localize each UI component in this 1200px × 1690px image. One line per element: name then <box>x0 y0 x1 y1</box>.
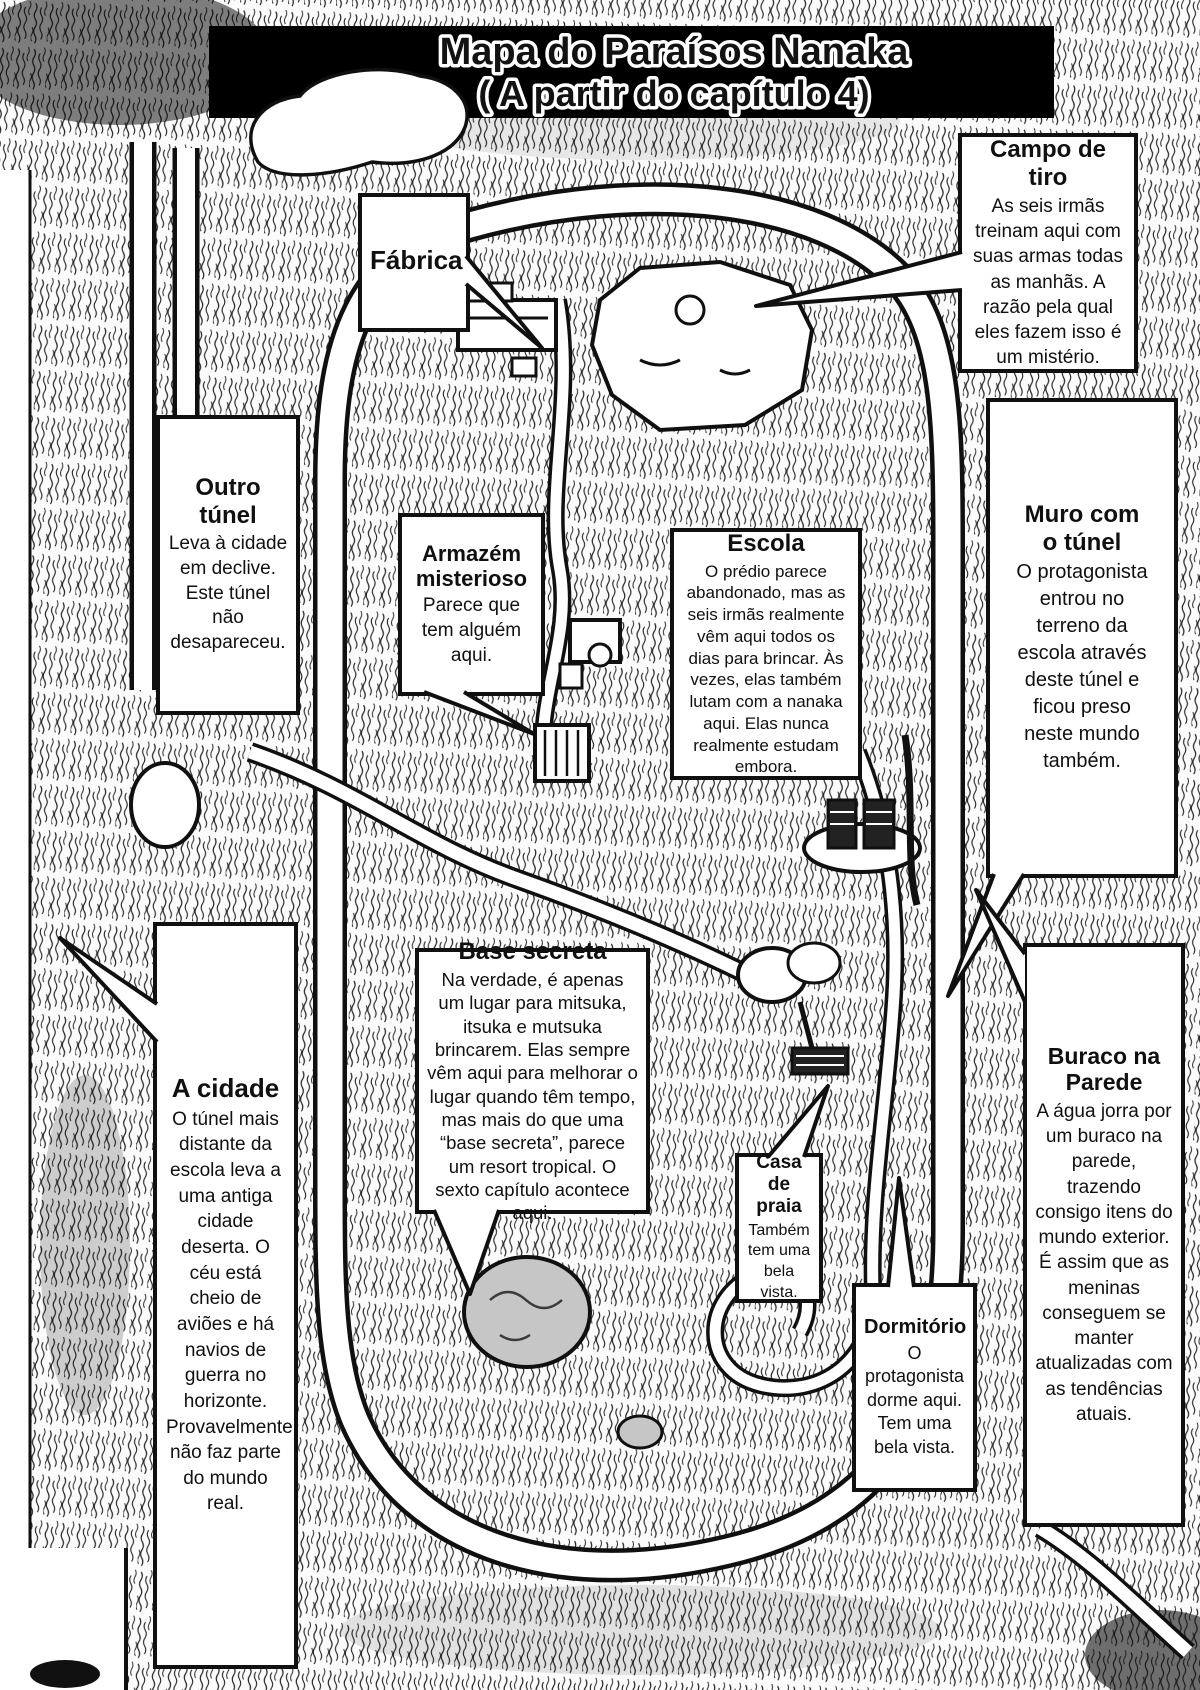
callout-title: Base secreta <box>427 938 638 966</box>
shooting-range-drawing <box>592 262 812 430</box>
callout-title: Dormitório <box>864 1316 965 1339</box>
callout-a-cidade: A cidade O túnel mais distante da escola… <box>153 922 298 1669</box>
callout-body: O prédio parece abandonado, mas as seis … <box>682 561 850 779</box>
callout-casa-de-praia: Casa de praia Também tem uma bela vista. <box>735 1153 823 1303</box>
callout-body: O túnel mais distante da escola leva a u… <box>166 1107 285 1517</box>
callout-title: A cidade <box>166 1074 285 1104</box>
callout-body: As seis irmãs treinam aqui com suas arma… <box>968 194 1128 370</box>
callout-title: Campo de tiro <box>968 136 1128 191</box>
callout-outro-tunel: Outro túnel Leva à cidade em declive. Es… <box>156 415 300 715</box>
warehouse-drawing <box>535 725 589 781</box>
callout-body: Leva à cidade em declive. Este túnel não… <box>168 532 288 655</box>
callout-body: A água jorra por um buraco na parede, tr… <box>1035 1099 1173 1427</box>
callout-body: Também tem uma bela vista. <box>743 1221 815 1304</box>
callout-title: Escola <box>682 530 850 558</box>
callout-title: Outro túnel <box>168 474 288 529</box>
callout-body: Parece que tem alguém aqui. <box>410 594 533 668</box>
map-title-text: Mapa do Paraísos Nanaka ( A partir do ca… <box>209 26 1054 118</box>
page-title-line1: Mapa do Paraísos Nanaka <box>440 31 910 73</box>
callout-dormitorio: Dormitório O protagonista dorme aqui. Te… <box>852 1283 977 1492</box>
callout-title: Fábrica <box>370 246 458 276</box>
page-title-line2: ( A partir do capítulo 4) <box>478 73 869 114</box>
callout-muro-com-o-tunel: Muro com o túnel O protagonista entrou n… <box>986 398 1178 878</box>
map-title-banner: Mapa do Paraísos Nanaka ( A partir do ca… <box>209 26 1054 118</box>
callout-fabrica: Fábrica <box>358 193 470 332</box>
callout-body: O protagonista dorme aqui. Tem uma bela … <box>864 1342 965 1459</box>
callout-body: Na verdade, é apenas um lugar para mitsu… <box>427 968 638 1224</box>
manga-map-page: Mapa do Paraísos Nanaka ( A partir do ca… <box>0 0 1200 1690</box>
callout-title: Muro com o túnel <box>1016 501 1148 556</box>
callout-title: Casa de praia <box>743 1152 815 1218</box>
callout-buraco-na-parede: Buraco na Parede A água jorra por um bur… <box>1023 943 1185 1527</box>
callout-title: Buraco na Parede <box>1035 1043 1173 1096</box>
callout-escola: Escola O prédio parece abandonado, mas a… <box>670 528 862 780</box>
callout-base-secreta: Base secreta Na verdade, é apenas um lug… <box>415 948 650 1214</box>
callout-title: Armazém misterioso <box>410 541 533 592</box>
callout-campo-de-tiro: Campo de tiro As seis irmãs treinam aqui… <box>958 133 1138 373</box>
callout-body: O protagonista entrou no terreno da esco… <box>1016 559 1148 775</box>
callout-armazem-misterioso: Armazém misterioso Parece que tem alguém… <box>398 513 545 696</box>
